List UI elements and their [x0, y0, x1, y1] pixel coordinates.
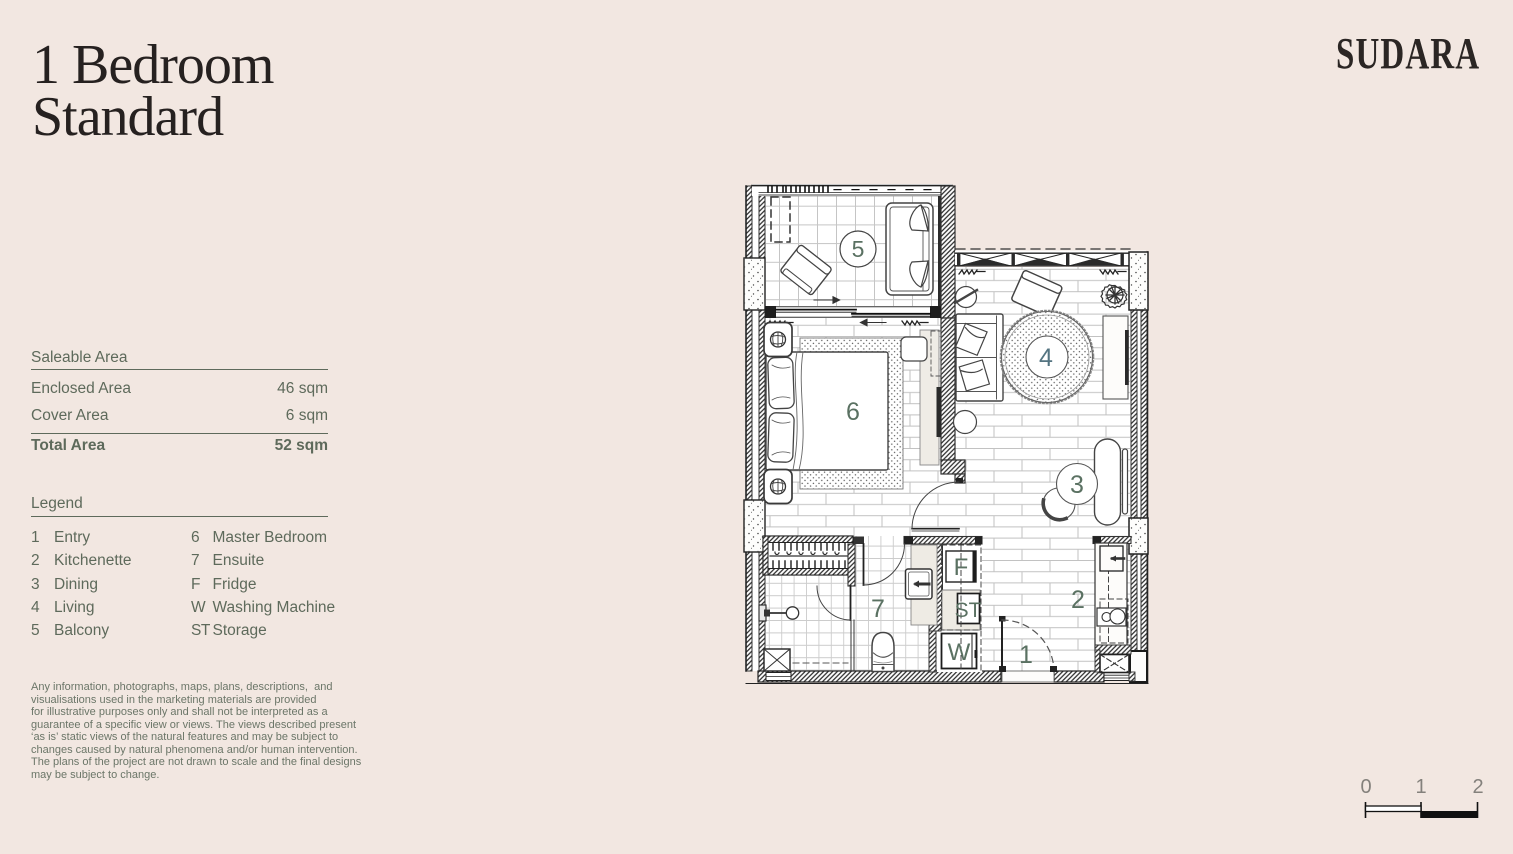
svg-text:F: F: [954, 554, 969, 581]
svg-text:2: 2: [1071, 586, 1085, 614]
svg-text:6: 6: [846, 398, 860, 426]
svg-text:2: 2: [1472, 776, 1483, 798]
svg-text:0: 0: [1360, 776, 1371, 798]
svg-text:1: 1: [1415, 776, 1426, 798]
svg-text:W: W: [948, 639, 971, 666]
svg-text:5: 5: [852, 236, 865, 262]
svg-text:1: 1: [1019, 641, 1033, 669]
svg-text:7: 7: [871, 595, 885, 623]
svg-text:4: 4: [1039, 344, 1053, 372]
svg-text:3: 3: [1070, 471, 1084, 499]
svg-text:ST: ST: [955, 599, 982, 622]
